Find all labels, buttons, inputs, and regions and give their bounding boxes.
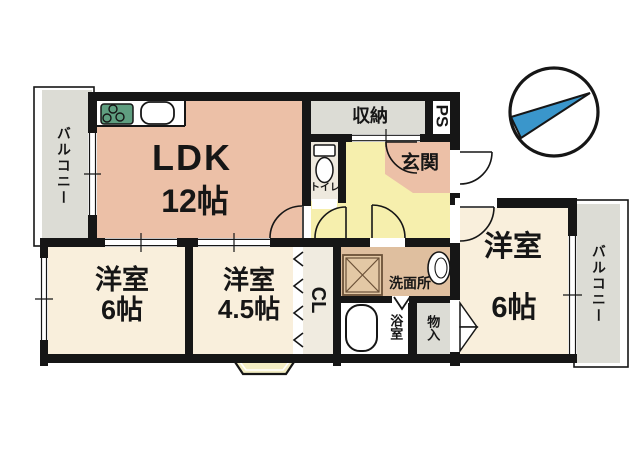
ldk-label: LDK	[152, 138, 232, 178]
sink-icon	[141, 102, 174, 124]
stove-icon	[101, 104, 133, 124]
bedroom-center-size: 4.5帖	[218, 295, 280, 324]
balcony-left-label: バルコニー	[55, 126, 71, 206]
bathroom-label: 浴室	[388, 314, 403, 340]
toilet-label: トイレ	[310, 182, 340, 193]
doorway-entrance	[450, 150, 460, 193]
toilet-icon	[314, 145, 335, 183]
storage-label: 収納	[352, 106, 388, 126]
storage-small-label: 物入	[425, 315, 440, 341]
doorway-washroom	[370, 238, 405, 247]
compass-icon	[510, 68, 598, 156]
bedroom-right-size: 6帖	[491, 292, 536, 324]
bedroom-right-name: 洋室	[484, 231, 542, 263]
doorway-bedroom-right	[450, 205, 460, 243]
washer-icon	[343, 255, 382, 295]
folding-door-cl	[293, 247, 303, 354]
ldk-size: 12帖	[161, 184, 229, 220]
bedroom-center-label: 洋室 4.5帖	[218, 266, 280, 324]
doorway-closet-right	[450, 300, 460, 352]
genkan-label: 玄関	[401, 152, 439, 173]
doorway-toilet	[312, 199, 337, 209]
washroom-label: 洗面所	[389, 276, 431, 292]
balcony-right-label: バルコニー	[590, 244, 606, 324]
bathtub-icon	[346, 305, 377, 351]
bedroom-center-name: 洋室	[218, 266, 280, 295]
ps-label: PS	[432, 105, 451, 128]
basin-icon	[428, 252, 450, 284]
floorplan-drawing	[0, 0, 640, 456]
floorplan-canvas: バルコニー LDK 12帖 収納 PS トイレ 玄関 洋室 6帖 洋室 4.5帖…	[0, 0, 640, 456]
bedroom-left-label: 洋室 6帖	[95, 265, 149, 325]
bedroom-left-size: 6帖	[95, 295, 149, 325]
cl-label: CL	[307, 287, 329, 314]
bedroom-left-name: 洋室	[95, 265, 149, 295]
